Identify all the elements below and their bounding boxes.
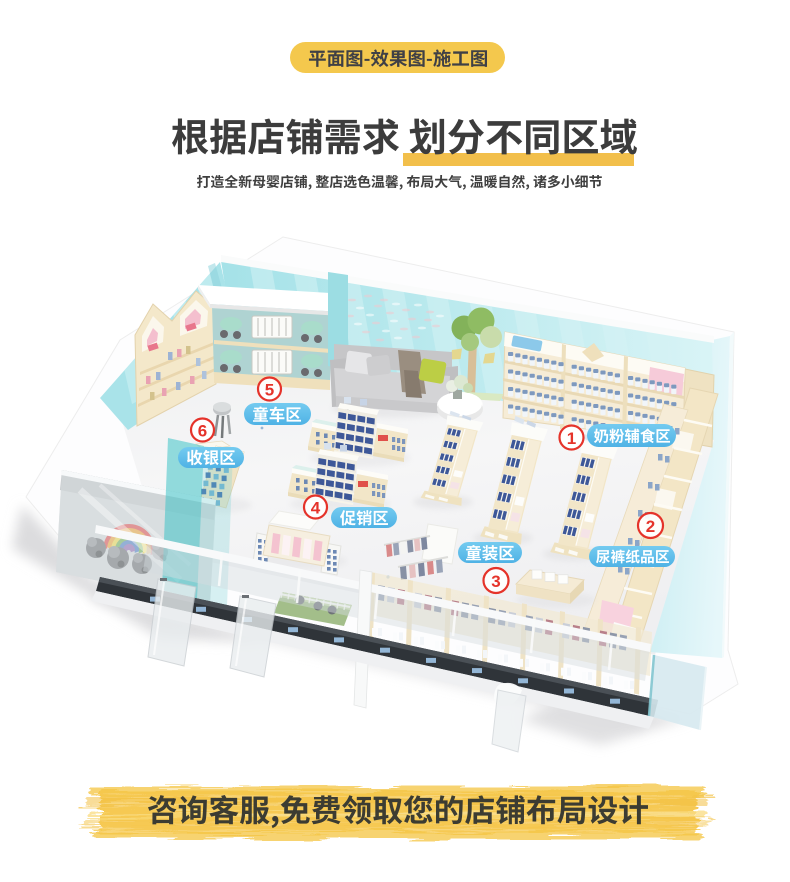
svg-text:6: 6 [198, 422, 207, 441]
svg-text:2: 2 [646, 517, 655, 536]
svg-text:1: 1 [567, 429, 576, 448]
svg-text:4: 4 [311, 499, 321, 518]
svg-text:3: 3 [491, 572, 500, 591]
svg-text:5: 5 [265, 381, 274, 400]
